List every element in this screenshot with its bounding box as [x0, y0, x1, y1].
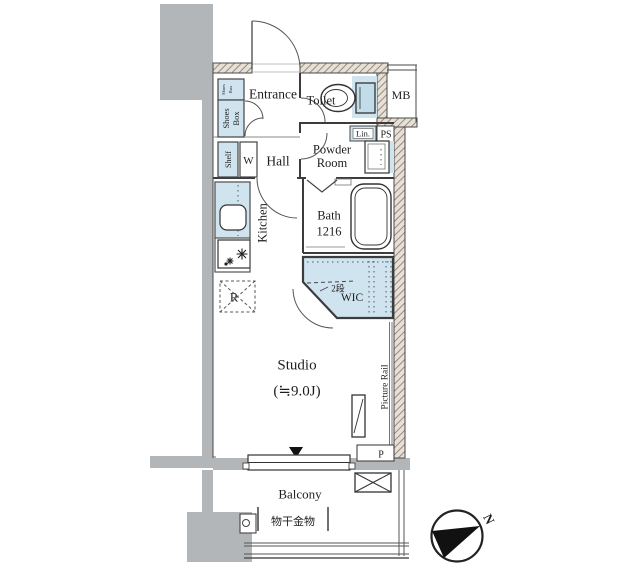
powder-room-label-1: Powder: [313, 142, 352, 156]
shoes-box-label-1: Shoes: [221, 108, 231, 128]
kitchen-label: Kitchen: [255, 202, 269, 242]
lin-label: Lin.: [356, 129, 370, 139]
pillar-block-top-left: [160, 4, 213, 100]
wash-basin: [365, 141, 389, 173]
pillar-label: P: [378, 450, 384, 461]
hall-label: Hall: [266, 154, 289, 169]
pillar-box: [357, 445, 394, 461]
balcony-label: Balcony: [278, 487, 322, 502]
shoes-box-label-2: Box: [231, 111, 241, 126]
top-wall-left: [213, 63, 252, 73]
studio-label: Studio: [277, 357, 316, 373]
powder-room-label-2: Room: [317, 156, 348, 170]
entrance-label: Entrance: [249, 87, 297, 102]
refrigerator-label: R: [230, 290, 239, 304]
washer-label: W: [243, 155, 254, 167]
mb-label: MB: [392, 88, 411, 102]
left-horizontal-wall: [150, 456, 216, 468]
toilet-tank: [356, 83, 375, 113]
bath-label-1: Bath: [317, 208, 341, 222]
studio-size-label: (≒9.0J): [273, 383, 320, 399]
shoes-box-upper-label-2: Box: [228, 85, 233, 93]
right-outer-wall: [394, 127, 405, 458]
shoes-box-upper-label-1: Shoes: [221, 84, 226, 95]
basin-counter-strip: [389, 141, 394, 173]
kitchen-sink: [220, 205, 246, 230]
bathtub: [351, 184, 391, 249]
wic-label: WIC: [341, 292, 364, 304]
floor-plan-page: N Entrance Toilet MB PS Lin. Powder Room…: [0, 0, 640, 569]
top-wall-right: [300, 63, 388, 73]
toilet-right-wall: [377, 73, 387, 118]
laundry-hardware-label: 物干金物: [271, 514, 315, 528]
toilet-label: Toilet: [307, 93, 337, 107]
floor-plan: N Entrance Toilet MB PS Lin. Powder Room…: [0, 0, 640, 569]
bath-counter: [335, 179, 351, 185]
kitchen-unit: [215, 182, 250, 272]
bath-label-2: 1216: [317, 224, 342, 238]
shelf-label: Shelf: [224, 151, 233, 168]
left-wall-bar-lower: [202, 470, 213, 514]
picture-rail-label: Picture Rail: [380, 364, 390, 409]
left-wall-bar: [202, 98, 213, 462]
ps-label: PS: [380, 130, 391, 141]
